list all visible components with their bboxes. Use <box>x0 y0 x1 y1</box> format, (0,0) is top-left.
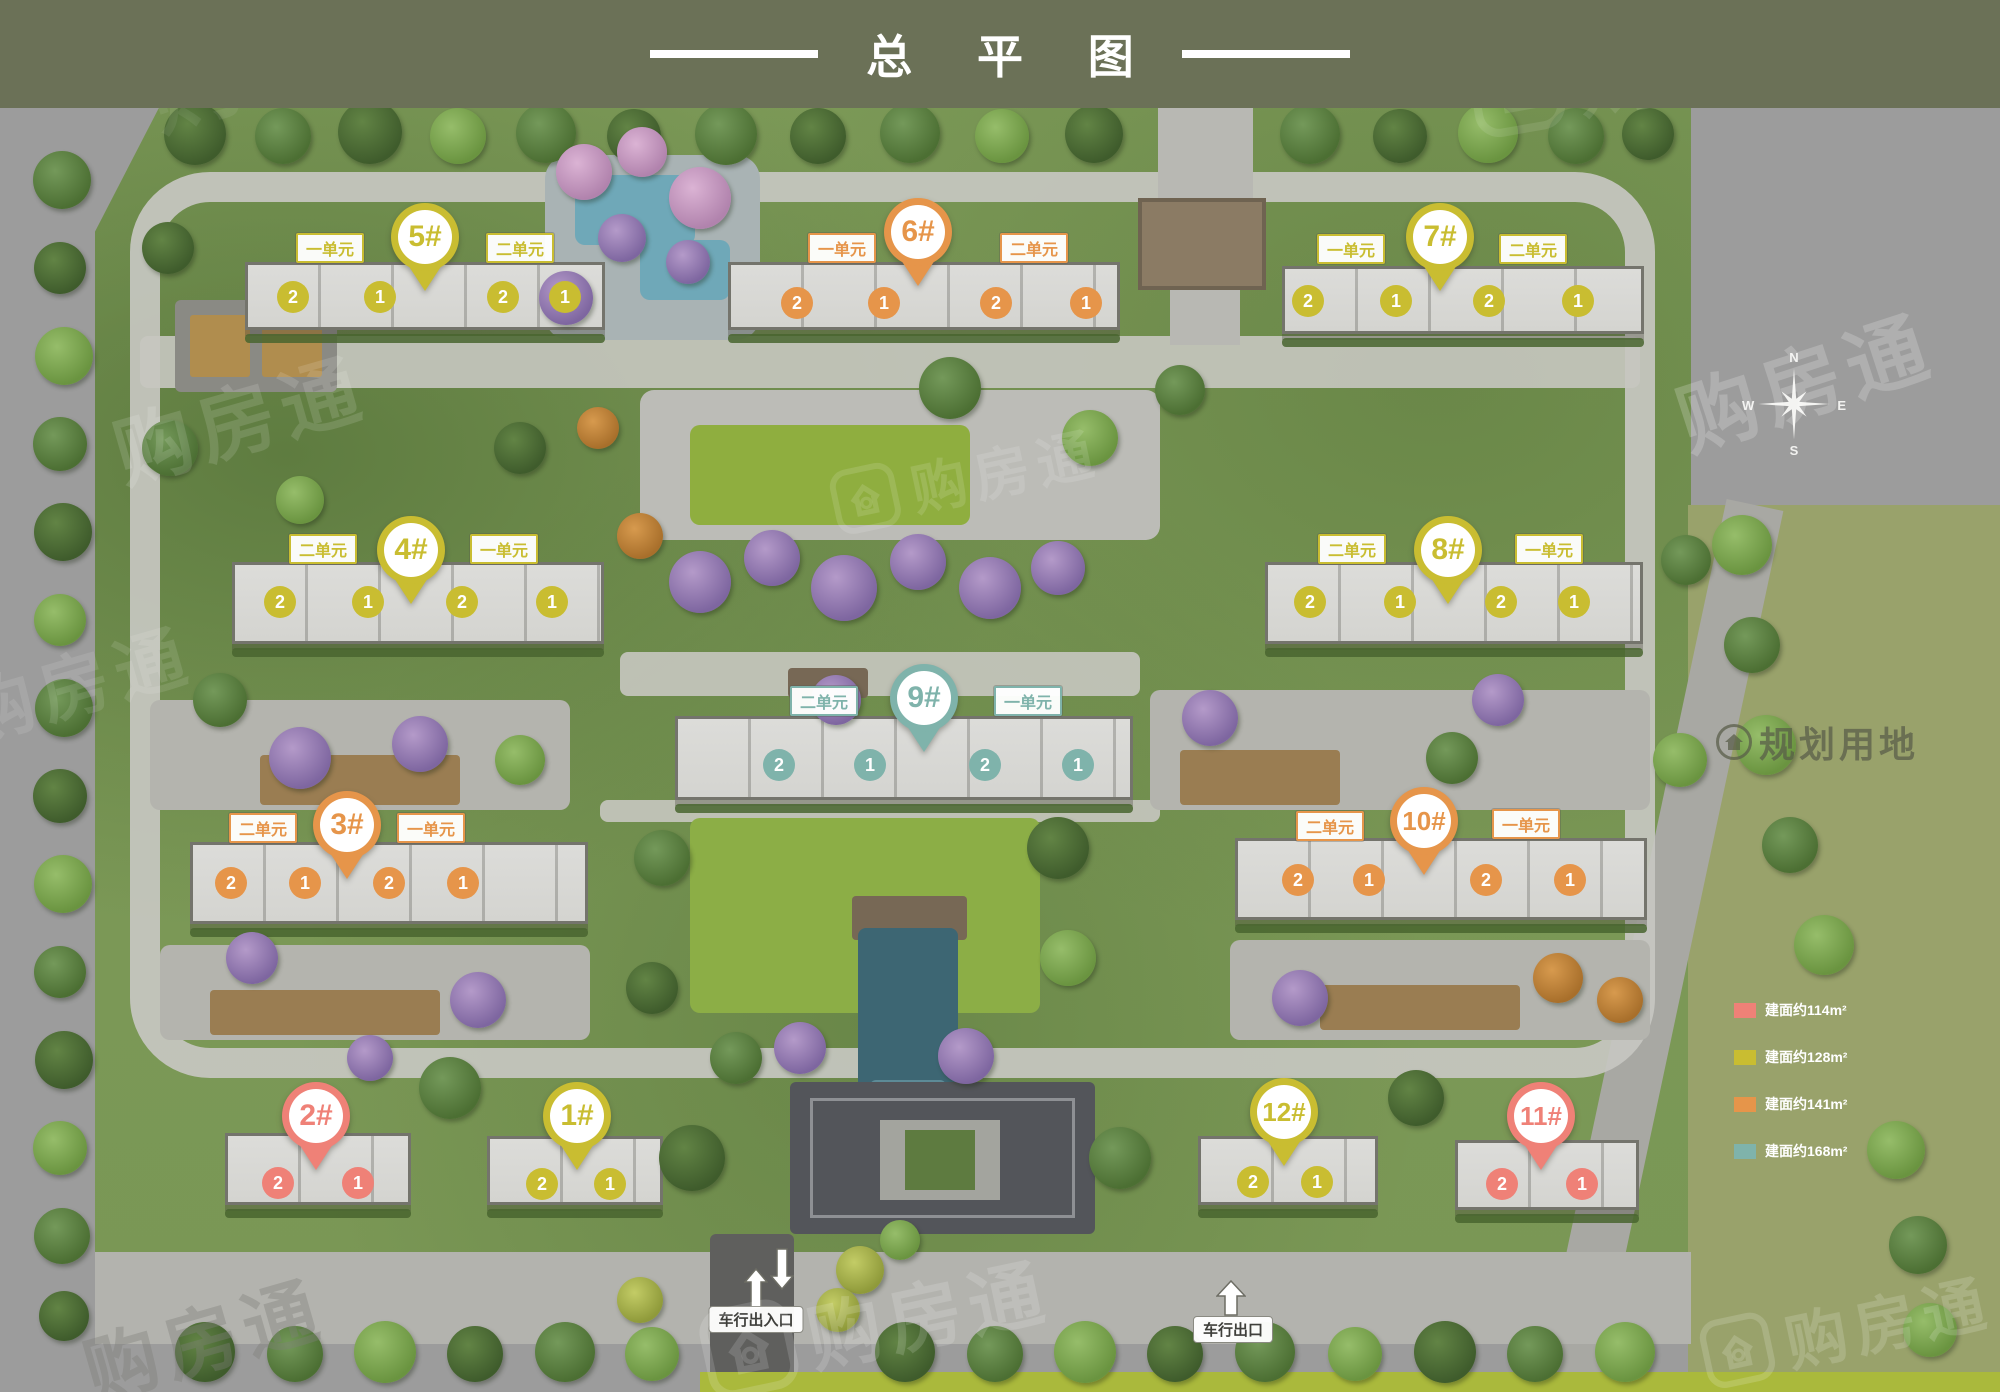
tree <box>494 422 546 474</box>
tree <box>1272 970 1328 1026</box>
tree <box>811 555 877 621</box>
tree <box>1794 915 1854 975</box>
unit-number-badge: 1 <box>854 749 886 781</box>
tree <box>617 1277 663 1323</box>
tree <box>35 679 93 737</box>
unit-number-badge: 1 <box>1558 586 1590 618</box>
pin-label: 10# <box>1402 806 1445 837</box>
unit-label: 一单元 <box>808 233 876 263</box>
tree <box>495 735 545 785</box>
unit-number-badge: 1 <box>1562 285 1594 317</box>
tree <box>226 932 278 984</box>
unit-label: 一单元 <box>1515 534 1583 564</box>
tree <box>33 769 87 823</box>
exit-arrow-icon <box>1216 1280 1246 1316</box>
tree <box>535 1322 595 1382</box>
tree <box>710 1032 762 1084</box>
unit-number-badge: 1 <box>342 1167 374 1199</box>
unit-number-badge: 1 <box>868 287 900 319</box>
tree <box>617 513 663 559</box>
tree <box>1597 977 1643 1023</box>
pin-label: 12# <box>1262 1097 1305 1128</box>
tree <box>577 407 619 449</box>
tree <box>142 222 194 274</box>
tree <box>744 530 800 586</box>
unit-number-badge: 2 <box>1473 285 1505 317</box>
pin-label: 11# <box>1520 1101 1562 1132</box>
legend-item: 建面约128m² <box>1734 1047 1847 1067</box>
tree <box>836 1246 884 1294</box>
tree <box>276 476 324 524</box>
legend-label: 建面约114m² <box>1765 1000 1847 1020</box>
unit-number-badge: 2 <box>1485 586 1517 618</box>
tree <box>269 727 331 789</box>
tree <box>1653 733 1707 787</box>
pin-circle: 5# <box>391 203 459 271</box>
tree <box>33 417 87 471</box>
pin-circle: 9# <box>890 664 958 732</box>
wood-deck <box>1320 985 1520 1030</box>
vehicle-exit-label: 车行出口 <box>1193 1316 1273 1343</box>
unit-number-badge: 2 <box>277 281 309 313</box>
unit-number-badge: 1 <box>1384 586 1416 618</box>
tree <box>1280 104 1340 164</box>
tree <box>1054 1321 1116 1383</box>
tree <box>1622 108 1674 160</box>
pin-label: 8# <box>1431 533 1464 567</box>
tree <box>1027 817 1089 879</box>
unit-number-badge: 1 <box>1353 864 1385 896</box>
tree <box>1388 1070 1444 1126</box>
pin-label: 4# <box>394 533 427 567</box>
unit-number-badge: 1 <box>549 281 581 313</box>
pin-circle: 6# <box>884 198 952 266</box>
tree <box>1889 1216 1947 1274</box>
unit-number-badge: 1 <box>1301 1166 1333 1198</box>
legend-label: 建面约168m² <box>1765 1141 1847 1161</box>
tree <box>880 1220 920 1260</box>
hedge <box>1282 338 1644 347</box>
tree <box>34 855 92 913</box>
unit-label: 二单元 <box>289 534 357 564</box>
tree <box>880 103 940 163</box>
tree <box>1472 674 1524 726</box>
brand-circle-icon <box>1716 724 1752 760</box>
building-pin-1: 1# <box>543 1082 611 1170</box>
tree <box>354 1321 416 1383</box>
unit-label: 二单元 <box>1296 811 1364 841</box>
unit-label: 一单元 <box>994 686 1062 716</box>
tree <box>193 673 247 727</box>
pin-circle: 11# <box>1507 1082 1575 1150</box>
tree <box>1867 1121 1925 1179</box>
tree <box>34 1208 90 1264</box>
tree <box>626 962 678 1014</box>
legend-item: 建面约114m² <box>1734 1000 1847 1020</box>
tree <box>967 1326 1023 1382</box>
tree <box>450 972 506 1028</box>
hedge <box>1235 924 1647 933</box>
unit-label: 二单元 <box>790 686 858 716</box>
sports-court <box>190 315 250 377</box>
unit-number-badge: 1 <box>1070 287 1102 319</box>
tree <box>1507 1326 1563 1382</box>
tree <box>255 108 311 164</box>
building-pin-10: 10# <box>1390 787 1458 875</box>
tree <box>35 327 93 385</box>
tree <box>419 1057 481 1119</box>
legend-label: 建面约141m² <box>1765 1094 1847 1114</box>
tree <box>175 1322 235 1382</box>
unit-number-badge: 2 <box>487 281 519 313</box>
hedge <box>728 334 1120 343</box>
tree <box>1089 1127 1151 1189</box>
legend-item: 建面约141m² <box>1734 1094 1847 1114</box>
hedge <box>245 334 605 343</box>
compass-star <box>1749 362 1839 446</box>
pin-circle: 10# <box>1390 787 1458 855</box>
tree <box>959 557 1021 619</box>
pin-label: 2# <box>299 1099 332 1133</box>
unit-number-badge: 2 <box>446 586 478 618</box>
pin-circle: 12# <box>1250 1078 1318 1146</box>
pin-label: 5# <box>408 220 441 254</box>
tree <box>430 108 486 164</box>
pin-circle: 1# <box>543 1082 611 1150</box>
tree <box>659 1125 725 1191</box>
pin-label: 6# <box>901 215 934 249</box>
title-decor-line-left <box>650 50 818 58</box>
pin-label: 9# <box>907 681 940 715</box>
legend: 建面约114m² 建面约128m² 建面约141m² 建面约168m² <box>1734 1000 1847 1161</box>
tree <box>1062 410 1118 466</box>
tree <box>142 420 198 476</box>
tree <box>890 534 946 590</box>
tree <box>267 1326 323 1382</box>
tree <box>1762 817 1818 873</box>
unit-label: 一单元 <box>470 534 538 564</box>
wood-deck <box>1180 750 1340 805</box>
unit-number-badge: 2 <box>262 1167 294 1199</box>
tree <box>1533 953 1583 1003</box>
unit-number-badge: 2 <box>763 749 795 781</box>
tree <box>1373 109 1427 163</box>
tree <box>1040 930 1096 986</box>
tree <box>1458 103 1518 163</box>
tree <box>634 830 690 886</box>
unit-label: 二单元 <box>1318 534 1386 564</box>
unit-number-badge: 1 <box>447 867 479 899</box>
tree <box>33 151 91 209</box>
tree <box>666 240 710 284</box>
north-exit-driveway <box>1170 290 1240 345</box>
unit-number-badge: 2 <box>969 749 1001 781</box>
pin-circle: 2# <box>282 1082 350 1150</box>
clubhouse-garden <box>905 1130 975 1190</box>
unit-number-badge: 2 <box>1292 285 1324 317</box>
legend-swatch-141 <box>1734 1097 1756 1112</box>
tree <box>1548 108 1604 164</box>
unit-label: 二单元 <box>1499 234 1567 264</box>
unit-number-badge: 2 <box>781 287 813 319</box>
site-plan-page: 车行出口 车行出入口 N W E S 规划用地 建面约114m² 建面约12 <box>0 0 2000 1392</box>
page-title: 总 平 图 <box>866 21 1160 87</box>
tree <box>347 1035 393 1081</box>
building-pin-5: 5# <box>391 203 459 291</box>
tree <box>34 946 86 998</box>
unit-number-badge: 2 <box>980 287 1012 319</box>
unit-number-badge: 1 <box>536 586 568 618</box>
tree <box>938 1028 994 1084</box>
tree <box>875 1322 935 1382</box>
tree <box>617 127 667 177</box>
tree <box>35 1031 93 1089</box>
compass-icon: N W E S <box>1742 352 1846 456</box>
lawn <box>690 425 970 525</box>
tree <box>1155 365 1205 415</box>
tree <box>392 716 448 772</box>
unit-number-badge: 2 <box>264 586 296 618</box>
tree <box>34 594 86 646</box>
tree <box>695 103 757 165</box>
tree <box>1065 105 1123 163</box>
tree <box>625 1327 679 1381</box>
hedge <box>675 804 1133 813</box>
title-decor-line-right <box>1182 50 1350 58</box>
building-pin-7: 7# <box>1406 203 1474 291</box>
building-pin-11: 11# <box>1507 1082 1575 1170</box>
tree <box>774 1022 826 1074</box>
pin-label: 3# <box>330 808 363 842</box>
legend-label: 建面约128m² <box>1765 1047 1847 1067</box>
tree <box>34 503 92 561</box>
unit-label: 一单元 <box>397 813 465 843</box>
tree <box>975 109 1029 163</box>
unit-label: 一单元 <box>296 233 364 263</box>
pin-label: 7# <box>1423 220 1456 254</box>
unit-number-badge: 1 <box>1566 1168 1598 1200</box>
unit-number-badge: 2 <box>215 867 247 899</box>
unit-number-badge: 2 <box>1470 864 1502 896</box>
tree <box>816 1288 860 1332</box>
unit-number-badge: 1 <box>594 1168 626 1200</box>
hedge <box>232 648 604 657</box>
tree <box>164 103 226 165</box>
legend-swatch-114 <box>1734 1003 1756 1018</box>
wood-deck <box>210 990 440 1035</box>
hedge <box>1198 1209 1378 1218</box>
tree <box>598 214 646 262</box>
unit-label: 二单元 <box>1000 233 1068 263</box>
tree <box>1712 515 1772 575</box>
tree <box>556 144 612 200</box>
unit-label: 一单元 <box>1492 809 1560 839</box>
legend-swatch-168 <box>1734 1144 1756 1159</box>
hedge <box>1455 1214 1639 1223</box>
unit-label: 二单元 <box>486 233 554 263</box>
hedge <box>225 1209 411 1218</box>
tree <box>1414 1321 1476 1383</box>
vehicle-gate-label: 车行出入口 <box>708 1306 803 1333</box>
tree <box>39 1291 89 1341</box>
north-gate-canopy <box>1138 198 1266 290</box>
building-pin-2: 2# <box>282 1082 350 1170</box>
pin-circle: 8# <box>1414 516 1482 584</box>
tree <box>1595 1322 1655 1382</box>
unit-number-badge: 2 <box>526 1168 558 1200</box>
hedge <box>487 1209 663 1218</box>
building-pin-12: 12# <box>1250 1078 1318 1166</box>
legend-swatch-128 <box>1734 1050 1756 1065</box>
planned-land-label: 规划用地 <box>1716 716 1919 768</box>
gate-down-arrow-icon <box>770 1248 794 1290</box>
tree <box>1328 1327 1382 1381</box>
unit-number-badge: 2 <box>1486 1168 1518 1200</box>
house-icon <box>1724 733 1744 751</box>
tree <box>34 242 86 294</box>
tree <box>447 1326 503 1382</box>
tree <box>669 551 731 613</box>
legend-item: 建面约168m² <box>1734 1141 1847 1161</box>
unit-number-badge: 2 <box>1294 586 1326 618</box>
tree <box>1903 1303 1957 1357</box>
tree <box>669 167 731 229</box>
building-pin-9: 9# <box>890 664 958 752</box>
unit-label: 二单元 <box>229 813 297 843</box>
tree <box>919 357 981 419</box>
tree <box>338 100 402 164</box>
building-pin-3: 3# <box>313 791 381 879</box>
tree <box>1426 732 1478 784</box>
header: 总 平 图 <box>0 0 2000 108</box>
unit-label: 一单元 <box>1317 234 1385 264</box>
pin-circle: 4# <box>377 516 445 584</box>
building-pin-4: 4# <box>377 516 445 604</box>
tree <box>1661 535 1711 585</box>
pin-circle: 3# <box>313 791 381 859</box>
planned-land-text: 规划用地 <box>1759 716 1919 768</box>
north-exit-road <box>1158 108 1253 204</box>
pin-label: 1# <box>560 1099 593 1133</box>
tree <box>790 108 846 164</box>
tree <box>1031 541 1085 595</box>
unit-number-badge: 1 <box>1062 749 1094 781</box>
gate-up-arrow-icon <box>744 1268 768 1310</box>
building-pin-8: 8# <box>1414 516 1482 604</box>
unit-number-badge: 2 <box>1237 1166 1269 1198</box>
tree <box>1182 690 1238 746</box>
tree <box>1724 617 1780 673</box>
building-pin-6: 6# <box>884 198 952 286</box>
hedge <box>1265 648 1643 657</box>
tree <box>33 1121 87 1175</box>
pin-circle: 7# <box>1406 203 1474 271</box>
unit-number-badge: 1 <box>1554 864 1586 896</box>
unit-number-badge: 2 <box>1282 864 1314 896</box>
